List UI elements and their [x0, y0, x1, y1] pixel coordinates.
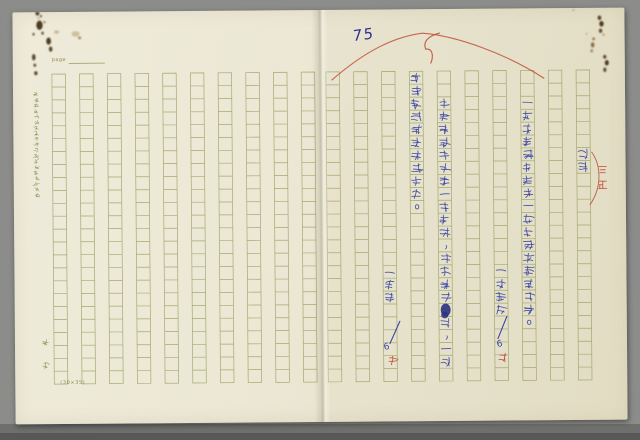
ink-stain — [572, 9, 574, 11]
ink-stain — [38, 17, 39, 19]
ink-stain — [34, 71, 37, 75]
ink-stain — [40, 15, 42, 17]
ink-stain — [43, 21, 45, 23]
ink-stain — [72, 31, 80, 37]
brand-mark — [42, 339, 49, 368]
ink-stain — [78, 36, 81, 39]
ink-stain — [46, 38, 51, 45]
proof-mark-number: 6 — [383, 343, 391, 353]
ink-stain — [36, 21, 42, 30]
ink-stain — [592, 37, 595, 40]
scanner-background-band — [0, 424, 640, 433]
scanner-background-band-dark — [0, 433, 640, 440]
ink-stain — [603, 34, 604, 35]
ink-stain — [54, 30, 59, 34]
proof-mark-number: 6 — [496, 340, 504, 350]
ink-stain — [590, 49, 593, 52]
printed-margin-text — [32, 92, 40, 197]
ink-stain — [32, 33, 34, 36]
ink-stain — [41, 32, 44, 35]
ink-stain — [598, 16, 602, 20]
page-label: page — [52, 58, 66, 63]
ink-stain — [599, 21, 603, 27]
manuscript-ink-layer — [12, 8, 627, 425]
ink-stain — [49, 46, 53, 51]
scanned-manuscript-photo: page 75 (30×35) 6 6 — [0, 0, 640, 440]
ink-stain — [32, 54, 36, 60]
ink-stain — [599, 29, 602, 33]
ink-stain — [603, 55, 606, 59]
ink-stain — [586, 33, 587, 34]
ink-stain — [33, 64, 36, 67]
manuscript-paper-spread: page 75 (30×35) 6 6 — [12, 8, 627, 425]
ink-stain — [35, 11, 39, 16]
grid-size-label: (30×35) — [60, 381, 85, 386]
handwritten-page-number: 75 — [353, 24, 375, 45]
